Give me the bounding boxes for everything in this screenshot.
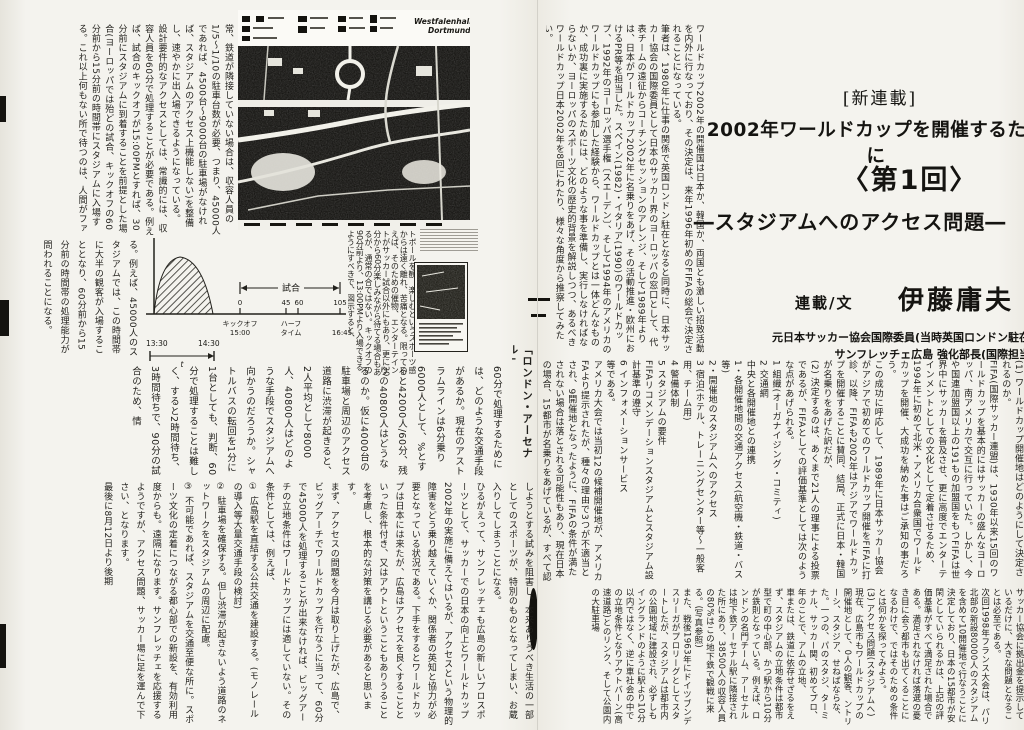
map-body: [238, 46, 470, 220]
article-lead-columns: ワールドカップ2002年の開催国は日本か、韓国か、両国とも激しい招致活動を内外に…: [546, 24, 704, 356]
map-credit-smallprint: [420, 229, 478, 252]
match-span-arrow: 試合: [240, 282, 340, 294]
tick-45: 45: [282, 299, 291, 307]
episode-subtitle: ―スタジアムへのアクセス問題―: [650, 206, 1024, 235]
axis-labels: キックオフ 15:00 ハーフ タイム 16:45: [223, 320, 353, 337]
left-bottom-band: しようとする試みを阻害し、本来ありうべき生活の一部としてのスポーツが、特別のもの…: [34, 482, 536, 726]
arrival-hump: [154, 257, 213, 314]
legend-inset-figure: [414, 262, 468, 352]
right-mid-band: (1) ワールドカップ開催地はどのようにして決定されるのか。 FIFA(国際サッ…: [540, 360, 1024, 582]
halftime-label2: タイム: [281, 328, 302, 337]
arrive-start-label: 13:30: [146, 339, 168, 348]
scan-mark-left-top: [0, 96, 6, 122]
byline-label: 連載/文: [795, 292, 853, 313]
left-column-below: る。例えば、45000人のスタジアムでは、この時間帯に大半の観客が入場することと…: [32, 240, 140, 358]
kickoff-label: キックオフ: [223, 320, 258, 328]
axis-ticks: 0 45 60 105: [238, 299, 347, 314]
author-credits: 元日本サッカー協会国際委員(当時英国ロンドン駐在 サンフレッチェ広島 強化部長(…: [700, 330, 1024, 363]
left-column-right-of-diagram: トボールを観、楽しむというスポーツ感からは遠く離れ、苦痛となる。限っていえば、そ…: [348, 230, 416, 377]
series-tag: [新連載]: [740, 84, 1020, 109]
halftime-label1: ハーフ: [281, 320, 302, 328]
right-bottom-band: サッカー協会に拠出金を提示しているだけに、大きな問題となることは必至である。 次…: [540, 588, 1024, 728]
match-span-label: 試合: [282, 282, 300, 294]
author-name: 伊藤庸夫: [898, 280, 1014, 317]
kickoff-time: 15:00: [230, 329, 250, 337]
fold-line: [537, 0, 538, 730]
subheading-london-arsenal: 「ロンドン・アーセナル」: [512, 344, 534, 466]
tick-0: 0: [238, 299, 242, 307]
tick-60: 60: [295, 299, 304, 307]
tick-105: 105: [333, 299, 346, 307]
map-figure: Westfalenhallen Dortmund: [238, 10, 470, 230]
scanned-article-spread: 常、鉄道が隣接していない場合は、収容人員の1/5〜1/10の駐車台数が必要、つま…: [0, 0, 1024, 730]
episode-number: 〈第1回〉: [800, 158, 1020, 197]
map-title-line2: Dortmund: [428, 26, 470, 35]
scan-mark-left-bottom: [0, 624, 6, 668]
map-title-line1: Westfalenhallen: [414, 17, 470, 26]
scan-mark-left-mid: [0, 300, 9, 336]
kickoff-timeline-diagram: 試合 0 45 60 105 キックオフ 15:00 ハーフ タイム 16:45…: [140, 230, 355, 370]
arrival-window: 13:30 14:30 t: [146, 339, 220, 369]
fold-dash-2: [531, 314, 546, 317]
left-mid-band: 60分で処理するためには、どのような交通手段があるか。現在のアストラムラインは6…: [34, 366, 506, 478]
left-column-top: 常、鉄道が隣接していない場合は、収容人員の1/5〜1/10の駐車台数が必要、つま…: [32, 24, 234, 236]
arrive-end-label: 14:30: [198, 339, 220, 348]
